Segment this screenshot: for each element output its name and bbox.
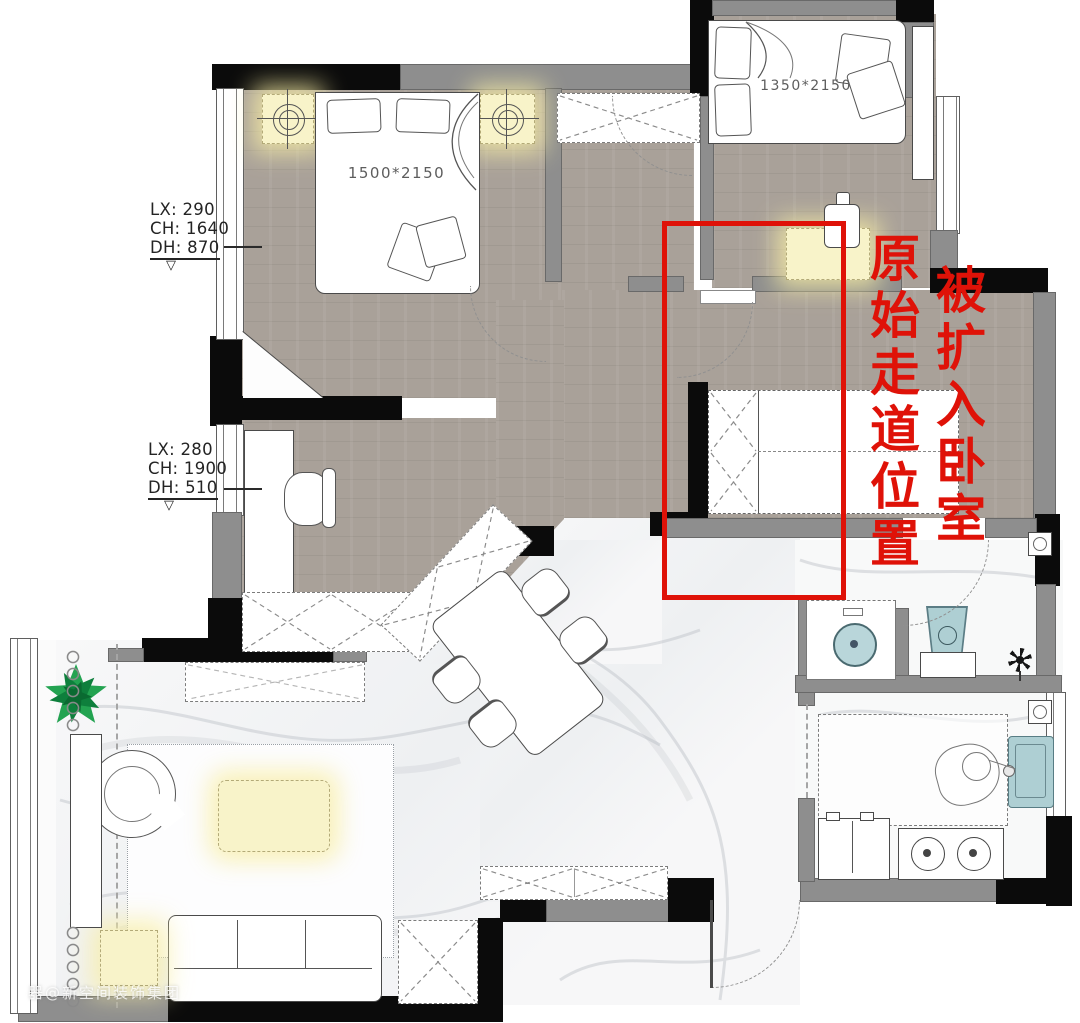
wall-segment (896, 0, 934, 24)
wall-segment (996, 878, 1058, 904)
desk-chair-back (322, 468, 336, 528)
nightstand (262, 94, 314, 144)
wall-segment (108, 648, 144, 662)
burner-center (923, 849, 931, 857)
stove-burner-icon (911, 837, 945, 871)
coffee-table (218, 780, 330, 852)
wall-segment (712, 0, 900, 16)
wall-segment (546, 898, 670, 922)
floor-drain-icon (1028, 700, 1052, 724)
wall-segment (478, 918, 503, 1022)
sofa-divider (305, 920, 306, 968)
fridge-hinge (826, 812, 840, 821)
watermark: 器@新空间装饰集团 (28, 982, 181, 1003)
person-head-icon (962, 752, 991, 781)
leader-tick (224, 246, 262, 248)
side-table (100, 930, 158, 986)
toilet-hole (938, 626, 957, 645)
annotation-column-1: 原始走道位置 (866, 232, 916, 584)
wall-segment (500, 898, 548, 922)
bed-size-label: 1350*2150 (708, 78, 904, 94)
drain-circle (1033, 537, 1047, 551)
lamp-cross-line (476, 118, 539, 119)
dim-ch: CH: 1900 (148, 459, 227, 478)
lamp-crosshair-icon (279, 110, 299, 130)
tv-cabinet (185, 662, 365, 702)
stove (898, 828, 1004, 880)
window-band (936, 96, 960, 234)
stove-burner-icon (957, 837, 991, 871)
sink-basin (1015, 744, 1046, 798)
floor-plan: 1500*2150 1350*2150 (0, 0, 1080, 1023)
sofa-divider (237, 920, 238, 968)
fridge-hinge (860, 812, 874, 821)
sofa (168, 915, 382, 1002)
blanket-fold (742, 20, 808, 82)
pillow (326, 98, 381, 134)
balcony-window (10, 638, 38, 1014)
wall-segment (400, 64, 698, 90)
burner-center (969, 849, 977, 857)
radiator (60, 648, 86, 734)
washing-machine-dot (850, 640, 858, 648)
lamp-cross-line (506, 89, 507, 149)
datum-triangle-icon: ▽ (164, 500, 227, 511)
toilet-base (920, 652, 976, 678)
kitchen-opening-line (806, 704, 808, 798)
dimension-label-2: LX: 280 CH: 1900 DH: 510 ▽ (148, 440, 227, 511)
entry-cabinet (480, 866, 668, 900)
sofa-seat-line (174, 968, 372, 969)
nightstand (480, 94, 535, 144)
wall-segment (212, 512, 242, 600)
lamp-cross-line (287, 89, 288, 149)
wall-segment (1033, 292, 1056, 520)
fridge (818, 818, 890, 880)
wall-segment (668, 878, 714, 922)
laundry-closet (806, 600, 896, 680)
lamp-cross-line (257, 118, 319, 119)
bed-size-label: 1500*2150 (315, 164, 478, 182)
washing-machine-latch (843, 608, 863, 616)
wall-segment (212, 396, 402, 420)
wall-segment (1036, 584, 1056, 678)
fan-hub (1016, 656, 1024, 664)
wall-segment (212, 64, 402, 90)
dim-ch: CH: 1640 (150, 219, 229, 238)
entry-door-leaf (710, 900, 713, 988)
red-highlight-box (662, 221, 846, 600)
dim-dh: DH: 510 (148, 478, 218, 500)
shoe-cabinet (398, 920, 478, 1004)
floor-drain-icon (1028, 532, 1052, 556)
curtain-cabinet-strip (912, 26, 934, 180)
kitchen-sink (1008, 736, 1054, 808)
exhaust-fan-icon (1008, 648, 1032, 672)
dim-dh: DH: 870 (150, 238, 220, 260)
leader-tick (224, 488, 262, 490)
radiator-panel (70, 734, 102, 928)
drain-circle (1033, 705, 1047, 719)
wall-segment (798, 798, 815, 882)
fridge-divider (852, 821, 853, 873)
fan-stem (1019, 671, 1021, 681)
wall-segment (800, 878, 998, 902)
dim-lx: LX: 290 (150, 200, 215, 219)
annotation-column-2: 被扩入卧室 (932, 264, 982, 564)
datum-triangle-icon: ▽ (166, 260, 229, 271)
cabinet-divider (574, 869, 575, 897)
dim-lx: LX: 280 (148, 440, 213, 459)
lamp-crosshair-icon (498, 110, 518, 130)
dimension-label-1: LX: 290 CH: 1640 DH: 870 ▽ (150, 200, 229, 271)
